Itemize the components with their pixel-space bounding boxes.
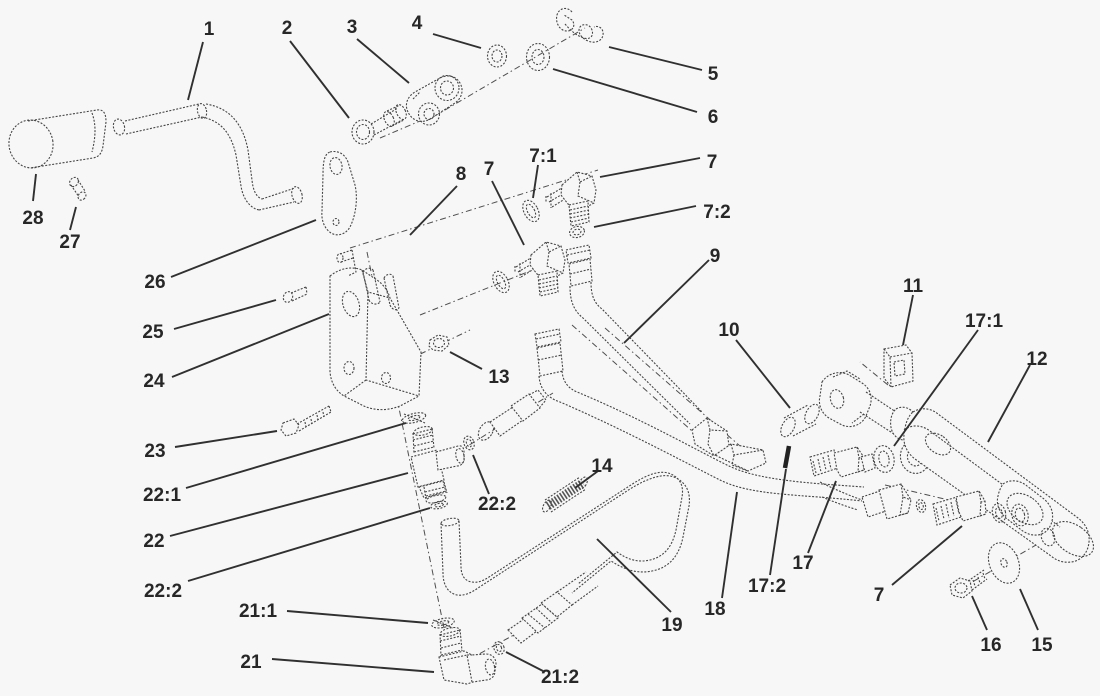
svg-text:7: 7 — [874, 585, 885, 606]
svg-text:6: 6 — [708, 107, 719, 128]
svg-text:5: 5 — [708, 64, 719, 85]
svg-text:26: 26 — [144, 272, 165, 293]
svg-text:9: 9 — [710, 246, 721, 267]
svg-text:15: 15 — [1031, 635, 1053, 656]
svg-text:8: 8 — [456, 164, 467, 185]
svg-text:11: 11 — [903, 276, 924, 297]
svg-text:7:2: 7:2 — [703, 202, 730, 223]
svg-text:21:1: 21:1 — [239, 601, 277, 622]
svg-text:3: 3 — [347, 17, 358, 38]
svg-text:21: 21 — [240, 652, 262, 673]
svg-text:22:2: 22:2 — [478, 494, 516, 515]
svg-text:17:2: 17:2 — [748, 576, 786, 597]
svg-text:7: 7 — [707, 152, 718, 173]
svg-text:7:1: 7:1 — [529, 146, 557, 167]
svg-text:2: 2 — [282, 18, 293, 39]
svg-text:10: 10 — [718, 320, 739, 341]
svg-text:27: 27 — [59, 232, 80, 253]
svg-text:1: 1 — [204, 19, 215, 40]
svg-text:22: 22 — [143, 531, 164, 552]
svg-text:17: 17 — [792, 553, 813, 574]
svg-text:21:2: 21:2 — [541, 667, 579, 688]
svg-text:18: 18 — [704, 599, 725, 620]
svg-text:25: 25 — [142, 322, 164, 343]
svg-text:17:1: 17:1 — [965, 311, 1003, 332]
svg-text:16: 16 — [980, 635, 1001, 656]
svg-text:7: 7 — [484, 159, 495, 180]
svg-text:12: 12 — [1026, 349, 1047, 370]
svg-text:28: 28 — [22, 208, 43, 229]
svg-text:22:1: 22:1 — [143, 485, 181, 506]
svg-text:22:2: 22:2 — [144, 581, 182, 602]
svg-text:19: 19 — [661, 615, 682, 636]
svg-text:24: 24 — [143, 371, 165, 392]
svg-text:4: 4 — [412, 13, 423, 34]
svg-text:23: 23 — [144, 441, 165, 462]
svg-text:14: 14 — [591, 456, 613, 477]
svg-text:13: 13 — [488, 367, 509, 388]
